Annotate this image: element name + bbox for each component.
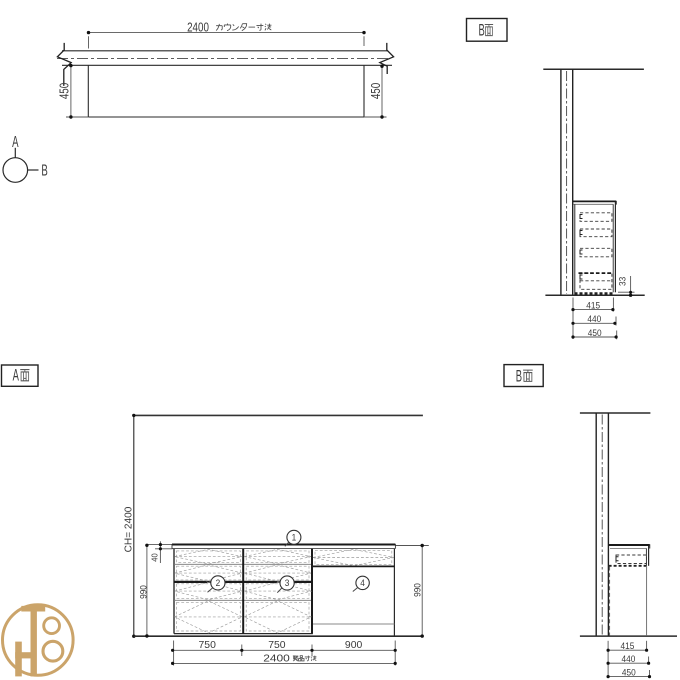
svg-text:A: A — [13, 366, 20, 385]
svg-text:3: 3 — [285, 578, 290, 589]
svg-text:2400: 2400 — [187, 22, 209, 35]
svg-text:450: 450 — [370, 83, 383, 99]
svg-text:440: 440 — [622, 654, 636, 665]
svg-text:A: A — [12, 133, 19, 151]
svg-text:CH= 2400: CH= 2400 — [124, 506, 135, 552]
svg-text:40: 40 — [150, 553, 160, 562]
svg-text:750: 750 — [268, 640, 286, 651]
svg-text:990: 990 — [412, 583, 423, 597]
svg-text:1: 1 — [292, 532, 297, 543]
svg-text:450: 450 — [58, 83, 71, 99]
svg-text:4: 4 — [360, 578, 365, 589]
svg-text:900: 900 — [345, 640, 363, 651]
svg-text:415: 415 — [586, 300, 600, 311]
svg-text:B: B — [41, 161, 47, 179]
svg-text:750: 750 — [199, 640, 217, 651]
svg-text:990: 990 — [138, 585, 149, 599]
svg-text:33: 33 — [617, 277, 628, 286]
svg-text:440: 440 — [587, 314, 601, 325]
svg-text:B: B — [478, 21, 484, 40]
svg-text:2: 2 — [216, 578, 221, 589]
svg-text:450: 450 — [588, 327, 602, 338]
svg-text:450: 450 — [622, 667, 636, 678]
svg-text:2400: 2400 — [263, 653, 290, 664]
svg-text:415: 415 — [621, 641, 635, 652]
svg-text:B: B — [516, 366, 522, 385]
